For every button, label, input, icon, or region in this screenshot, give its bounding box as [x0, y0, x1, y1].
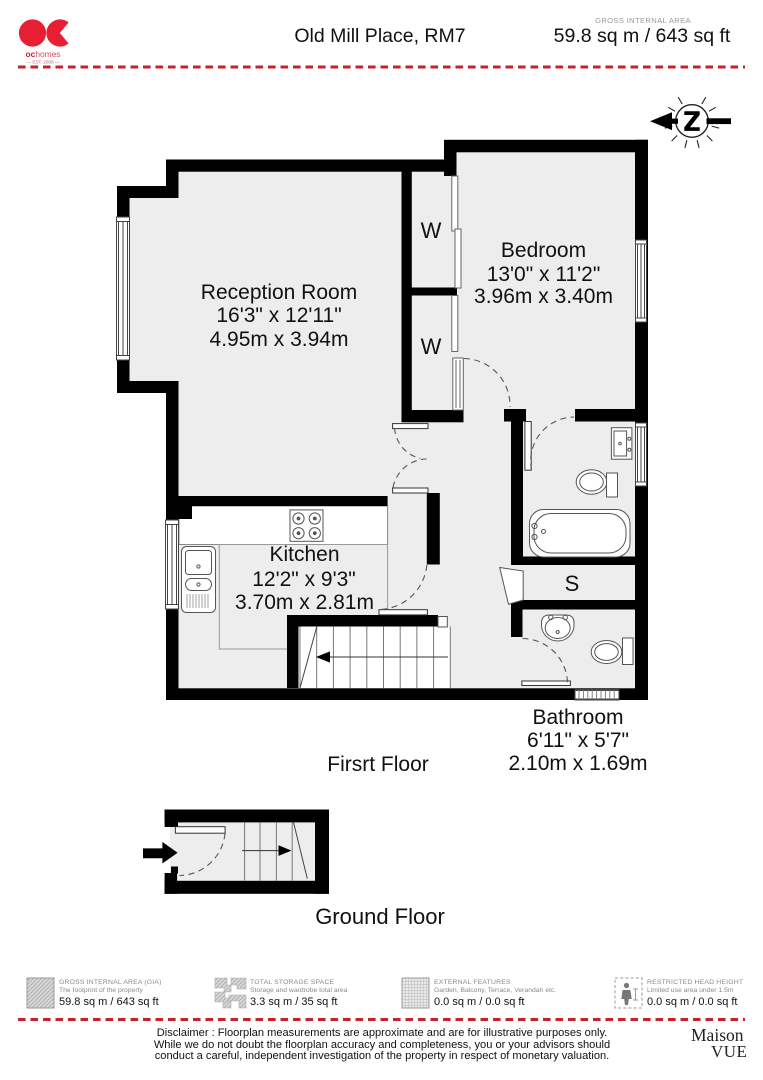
svg-text:ochomes: ochomes — [26, 49, 61, 59]
svg-text:— EST. 2008 —: — EST. 2008 — — [27, 60, 60, 65]
